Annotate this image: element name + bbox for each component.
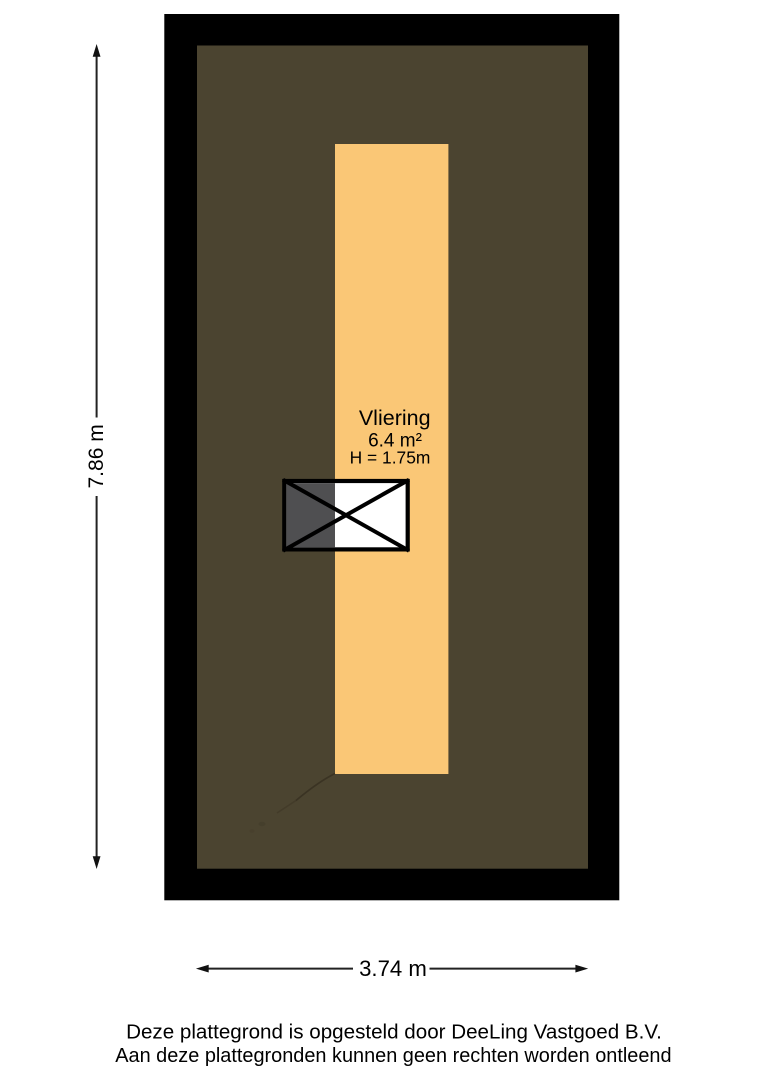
svg-text:Aan deze plattegronden kunnen: Aan deze plattegronden kunnen geen recht…	[115, 1045, 671, 1067]
svg-text:Deze plattegrond is opgesteld: Deze plattegrond is opgesteld door DeeLi…	[126, 1021, 662, 1044]
svg-text:3.74 m: 3.74 m	[359, 956, 427, 981]
svg-text:7.86 m: 7.86 m	[85, 424, 108, 488]
svg-text:H = 1.75m: H = 1.75m	[350, 448, 431, 468]
svg-text:Vliering: Vliering	[359, 406, 431, 430]
